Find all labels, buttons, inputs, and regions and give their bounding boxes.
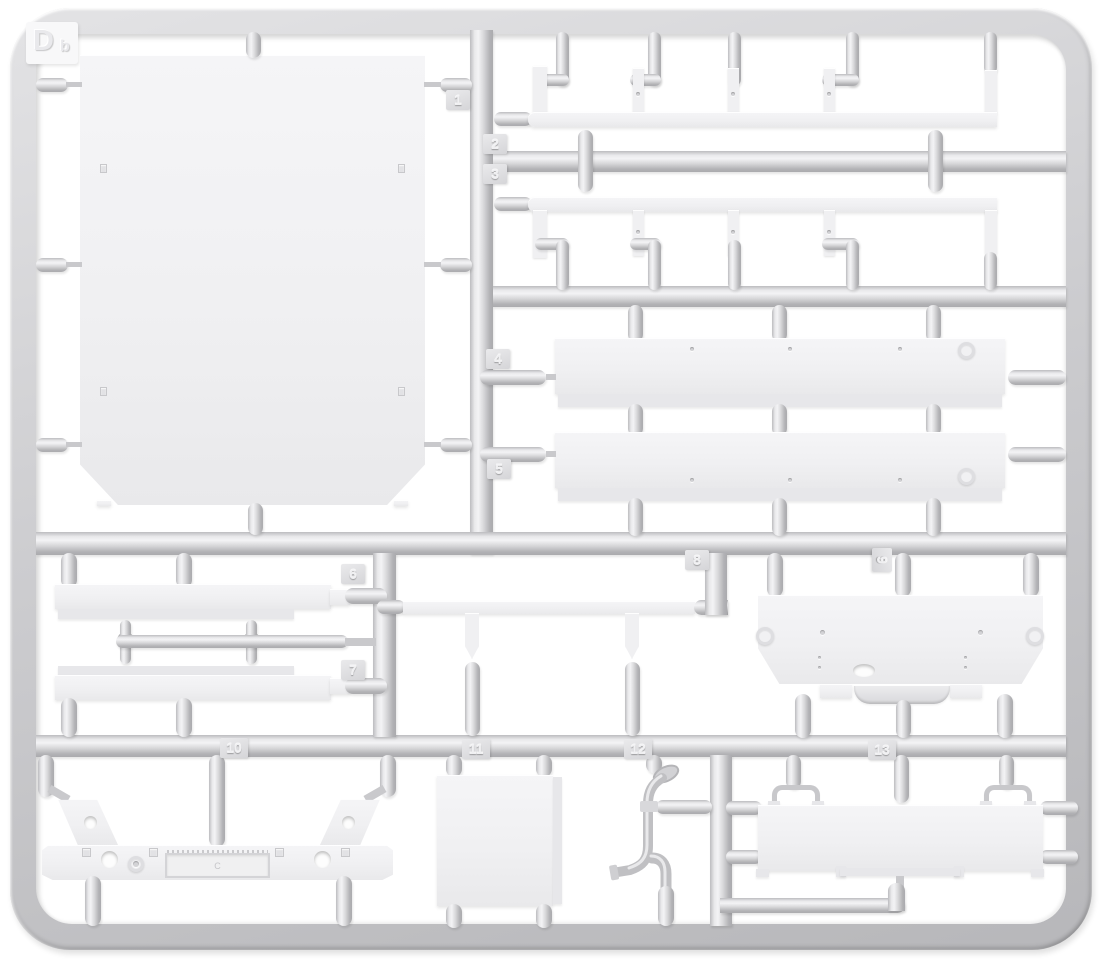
bumper-hole	[314, 851, 331, 868]
locator-mark	[82, 848, 91, 857]
sprue-id-letter: D	[33, 25, 54, 58]
rivet-dot	[731, 92, 735, 96]
rivet-dot	[964, 656, 967, 659]
gate-bulb	[1008, 447, 1066, 462]
sprue-id-subletter: b	[60, 38, 70, 56]
rivet-dot	[690, 347, 694, 351]
bumper-hole	[101, 851, 118, 868]
ladder-post	[533, 66, 547, 114]
part-number-tag-6: 6	[341, 564, 365, 584]
part-number-tag-4: 4	[486, 349, 510, 369]
rivet-dot	[827, 230, 831, 234]
wing-hole	[342, 816, 355, 829]
bumper-license-plate: C	[165, 853, 270, 878]
locator-mark	[398, 164, 405, 173]
part-long-panel	[758, 805, 1043, 871]
gate-stub	[85, 876, 101, 926]
drop-tube	[209, 755, 225, 847]
locator-mark	[100, 387, 107, 396]
gate-stub	[61, 553, 77, 588]
gate-stub	[628, 305, 643, 342]
flow-bulb	[928, 130, 943, 192]
part-number-tag-2: 2	[483, 134, 507, 154]
rivet-dot	[898, 478, 902, 482]
gate	[424, 442, 441, 447]
rivet-dot	[731, 230, 735, 234]
panel-bracket	[820, 684, 852, 698]
gate	[66, 442, 82, 447]
gate-bulb	[36, 78, 68, 92]
runner-top-right-lower	[493, 286, 1066, 307]
gate-stub	[926, 498, 941, 536]
gate-stub	[536, 755, 552, 777]
rivet-dot	[788, 347, 792, 351]
runner-center-vertical	[373, 553, 396, 737]
part-beam	[403, 601, 695, 614]
gate-stub	[772, 498, 787, 536]
panel-bracket	[950, 684, 982, 698]
part-number-tag-12: 12	[624, 739, 652, 759]
wing-hole	[84, 816, 97, 829]
drop-tube	[556, 240, 569, 290]
panel-foot	[756, 869, 769, 877]
box-flange	[553, 777, 562, 904]
gate-stub	[772, 305, 787, 342]
gate-bulb	[345, 678, 387, 694]
part-side-panel-lower	[555, 432, 1005, 488]
part-number-tag-13: 13	[868, 740, 896, 760]
part-ladder-rail-upper	[528, 112, 997, 127]
gate-stub	[999, 755, 1014, 789]
part-thin-bar	[840, 868, 960, 876]
gate	[546, 451, 556, 457]
drop-tube	[728, 240, 741, 290]
panel-boss	[756, 627, 774, 645]
part-box-panel	[437, 775, 553, 906]
sprue-id-tab: D b	[26, 22, 78, 64]
panel-foot	[1031, 869, 1044, 877]
panel-boss	[1026, 627, 1044, 645]
gate-bulb	[726, 801, 762, 815]
roof-panel-foot	[97, 500, 111, 506]
strip-flange	[58, 609, 294, 619]
gate-stub	[767, 553, 783, 597]
gate-stub	[465, 662, 480, 736]
ladder-post	[633, 68, 644, 114]
rivet-dot	[818, 666, 821, 669]
part-number-tag-7: 7	[341, 660, 365, 680]
drop-tube	[984, 252, 997, 290]
part-number-tag-9: 9	[872, 548, 892, 572]
gate-stub	[446, 904, 462, 928]
gate-bulb	[480, 370, 546, 385]
ladder-post	[533, 210, 547, 258]
locator-mark	[341, 848, 350, 857]
gate-stub	[248, 503, 263, 535]
rivet-dot	[898, 347, 902, 351]
gate	[546, 374, 556, 380]
gate-stub	[786, 755, 801, 789]
panel-boss	[958, 468, 975, 485]
part-number-tag-3: 3	[483, 164, 507, 184]
gate-stub	[997, 694, 1013, 738]
part-side-panel-upper	[555, 338, 1005, 394]
gate-stub	[1023, 553, 1039, 597]
gate-stub	[658, 886, 674, 926]
boss-center	[133, 861, 139, 867]
sprue-render: D b	[0, 0, 1100, 959]
gate-bulb	[36, 258, 68, 272]
drop-tube	[648, 240, 661, 290]
part-floor-panel	[758, 595, 1043, 684]
gate	[424, 82, 441, 87]
gate-stub	[894, 755, 909, 803]
locator-mark	[398, 387, 405, 396]
gate-stub	[536, 904, 552, 928]
locator-mark	[149, 848, 158, 857]
locator-mark	[275, 848, 284, 857]
rivet-dot	[690, 478, 694, 482]
gate-bulb	[1040, 850, 1078, 864]
gate-bulb	[36, 438, 68, 452]
rivet-dot	[636, 92, 640, 96]
part-number-tag-1: 1	[446, 90, 470, 110]
gate-stub	[336, 876, 352, 926]
rivet-dot	[978, 630, 983, 635]
gate	[66, 262, 82, 267]
gate-stub	[446, 755, 462, 777]
gate-stub	[628, 498, 643, 536]
gate-stub	[926, 305, 941, 342]
part-number-tag-5: 5	[487, 459, 511, 479]
gate-bulb	[377, 600, 405, 614]
gate-stub	[176, 553, 192, 588]
rivet-dot	[788, 478, 792, 482]
part-strip-lower	[55, 675, 331, 700]
part-number-tag-10: 10	[220, 738, 248, 758]
gate-bulb	[494, 197, 532, 211]
gate-bulb	[1008, 370, 1066, 385]
locator-mark	[100, 164, 107, 173]
gate-stub	[895, 553, 911, 597]
gate-stub	[176, 698, 192, 737]
panel-oval-hole	[853, 664, 875, 677]
rivet-dot	[636, 230, 640, 234]
gate-bulb	[1040, 801, 1078, 815]
gate	[345, 638, 376, 646]
gate	[66, 82, 82, 87]
gate-stub	[61, 698, 77, 737]
part-number-tag-8: 8	[685, 550, 709, 570]
part-ladder-rail-lower	[528, 197, 997, 212]
part-strip-upper	[55, 584, 331, 609]
ladder-post	[985, 210, 997, 254]
part-axle-rod	[116, 635, 348, 648]
gate-stub	[625, 662, 640, 736]
part-number-tag-11: 11	[462, 739, 490, 759]
ladder-post	[985, 70, 997, 114]
rivet-dot	[818, 656, 821, 659]
drop-tube	[846, 240, 859, 290]
plate-marking: C	[214, 861, 221, 871]
gate-bulb	[494, 112, 532, 126]
rivet-dot	[820, 630, 825, 635]
flow-bulb	[578, 130, 593, 192]
ladder-post	[824, 68, 835, 114]
roof-panel-foot	[394, 500, 408, 506]
runner-elbow-vertical	[888, 883, 905, 911]
rivet-dot	[964, 666, 967, 669]
runner-middle	[36, 532, 1066, 555]
runner-elbow-horizontal	[720, 898, 905, 913]
drop-tube	[984, 32, 997, 74]
panel-boss	[958, 342, 975, 359]
runner-bottom	[36, 735, 1066, 757]
gate-bulb	[440, 258, 472, 272]
rivet-dot	[827, 92, 831, 96]
gate-stub	[246, 32, 261, 58]
gate-bulb	[726, 850, 762, 864]
part-roof-panel	[80, 55, 425, 505]
gate	[424, 262, 441, 267]
gate-stub	[795, 694, 811, 738]
gate-stub	[896, 700, 911, 738]
gate-bulb	[440, 438, 472, 452]
ladder-post	[728, 68, 739, 114]
